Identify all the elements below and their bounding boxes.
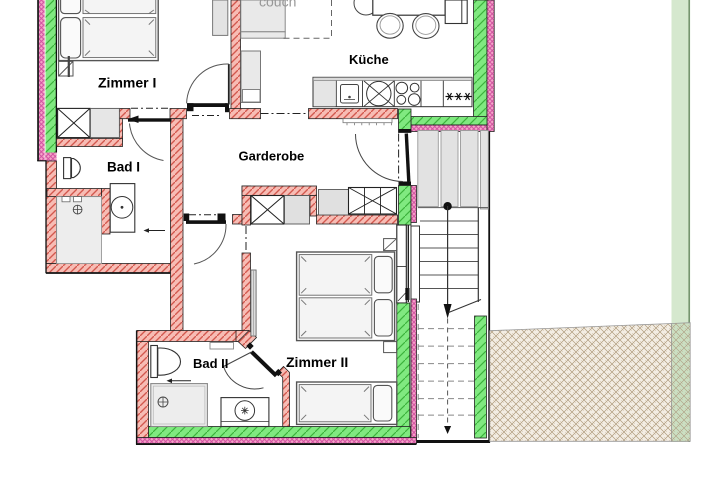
svg-text:Bad I: Bad I <box>107 160 140 175</box>
svg-text:Zimmer I: Zimmer I <box>98 75 156 91</box>
svg-text:Zimmer II: Zimmer II <box>286 354 348 370</box>
svg-text:Bad II: Bad II <box>193 356 228 371</box>
svg-text:Garderobe: Garderobe <box>239 149 305 164</box>
svg-text:Küche: Küche <box>349 52 389 67</box>
svg-text:couch: couch <box>259 0 296 10</box>
